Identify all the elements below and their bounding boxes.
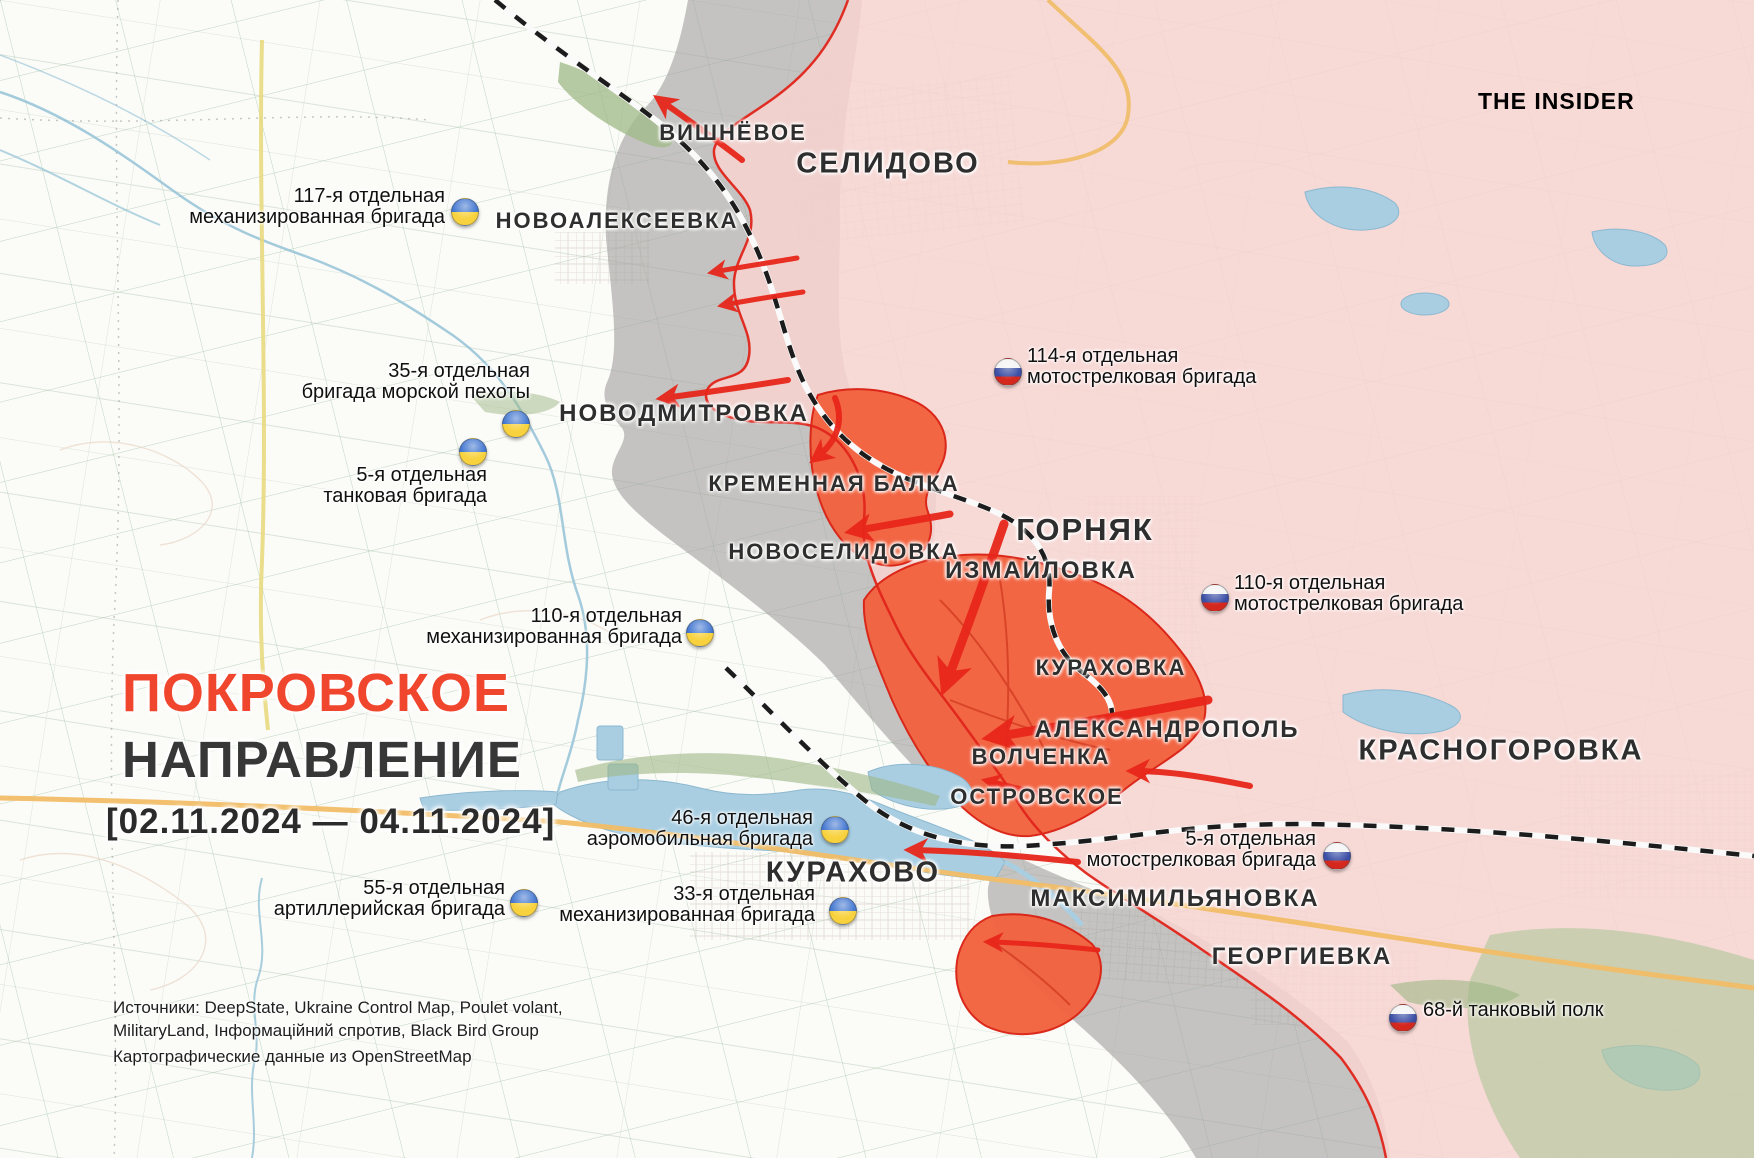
ukraine-flag-icon [451, 198, 479, 226]
town-label-gornyak: ГОРНЯК [1016, 512, 1154, 548]
town-label-vishnjovoe: ВИШНЁВОЕ [659, 120, 807, 146]
unit-label-ua-110-mech: 110-я отдельнаямеханизированная бригада [426, 606, 682, 648]
unit-label-ua-55-artillery: 55-я отдельнаяартиллерийская бригада [274, 878, 505, 920]
town-label-novodmitrovka: НОВОДМИТРОВКА [559, 400, 809, 428]
russia-flag-icon [1389, 1004, 1417, 1032]
unit-label-ru-5-motor: 5-я отдельнаямотострелковая бригада [1087, 829, 1316, 871]
ukraine-flag-icon [510, 889, 538, 917]
ukraine-flag-icon [686, 619, 714, 647]
map-title-main: НАПРАВЛЕНИЕ [122, 732, 555, 788]
ukraine-flag-icon [502, 410, 530, 438]
date-range: [02.11.2024 — 04.11.2024] [106, 802, 555, 842]
unit-label-ua-46-airmobile: 46-я отдельнаяаэромобильная бригада [587, 808, 813, 850]
the-insider-logo: THE INSIDER [1478, 88, 1635, 115]
unit-label-ru-114-motor: 114-я отдельнаямотострелковая бригада [1027, 346, 1256, 388]
town-label-novoselidovka: НОВОСЕЛИДОВКА [728, 539, 959, 565]
unit-label-ua-35-marine: 35-я отдельнаябригада морской пехоты [302, 361, 530, 403]
sources-line-1: Источники: DeepState, Ukraine Control Ma… [113, 996, 563, 1019]
ukraine-flag-icon [459, 438, 487, 466]
sources-credits: Источники: DeepState, Ukraine Control Ma… [113, 996, 563, 1068]
unit-label-ru-68-tank: 68-й танковый полк [1423, 1000, 1604, 1021]
sources-line-2: MilitaryLand, Інформаційний спротив, Bla… [113, 1019, 563, 1042]
map-title-accent: ПОКРОВСКОЕ [122, 664, 555, 722]
town-label-ostrovskoe: ОСТРОВСКОЕ [950, 784, 1124, 810]
town-label-selidovo: СЕЛИДОВО [796, 148, 979, 181]
ukraine-flag-icon [829, 897, 857, 925]
sources-line-3: Картографические данные из OpenStreetMap [113, 1045, 563, 1068]
unit-label-ua-117-mech: 117-я отдельнаямеханизированная бригада [189, 186, 445, 228]
unit-label-ru-110-motor: 110-я отдельнаямотострелковая бригада [1234, 573, 1463, 615]
town-label-georgievka: ГЕОРГИЕВКА [1212, 943, 1392, 971]
russia-flag-icon [1201, 584, 1229, 612]
unit-label-ua-33-mech: 33-я отдельнаямеханизированная бригада [559, 884, 815, 926]
town-label-izmaylovka: ИЗМАЙЛОВКА [945, 557, 1137, 585]
town-label-aleksandropol: АЛЕКСАНДРОПОЛЬ [1034, 716, 1299, 744]
title-block: ПОКРОВСКОЕ НАПРАВЛЕНИЕ [02.11.2024 — 04.… [122, 664, 555, 842]
russia-flag-icon [994, 358, 1022, 386]
town-label-maksimilyanovka: МАКСИМИЛЬЯНОВКА [1030, 885, 1319, 913]
town-label-kurakhovka: КУРАХОВКА [1036, 655, 1187, 681]
town-label-novoalekseevka: НОВОАЛЕКСЕЕВКА [496, 208, 739, 234]
war-map: ВИШНЁВОЕ СЕЛИДОВО НОВОАЛЕКСЕЕВКА НОВОДМИ… [0, 0, 1754, 1158]
town-label-volchenka: ВОЛЧЕНКА [972, 744, 1111, 770]
unit-label-ua-5-tank: 5-я отдельнаятанковая бригада [323, 465, 487, 507]
ukraine-flag-icon [821, 816, 849, 844]
russia-flag-icon [1323, 842, 1351, 870]
town-label-krasnogorovka: КРАСНОГОРОВКА [1359, 735, 1644, 768]
town-label-kremennaya-balka: КРЕМЕННАЯ БАЛКА [708, 471, 959, 497]
